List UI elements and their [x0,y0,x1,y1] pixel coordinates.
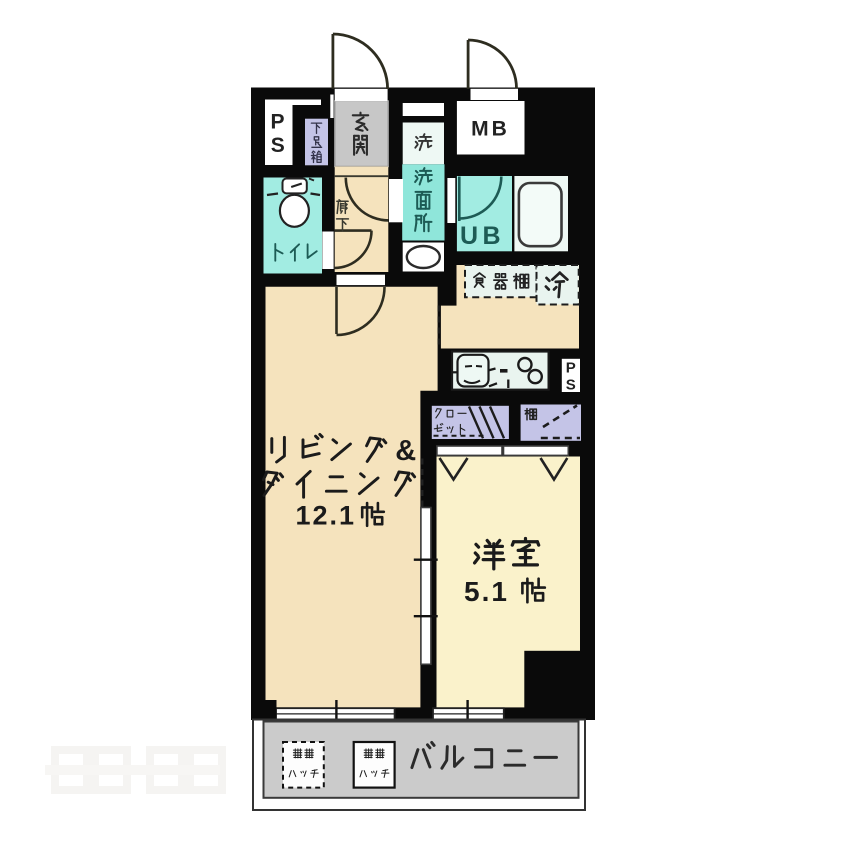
svg-text:B: B [482,222,500,250]
svg-text:MB: MB [471,118,510,141]
svg-text:S: S [566,377,576,394]
svg-text:P: P [270,111,284,134]
svg-text:U: U [460,222,478,250]
svg-text:P: P [566,360,576,377]
svg-text:12.1: 12.1 [296,501,357,531]
svg-text:S: S [271,134,285,157]
svg-text:5.1: 5.1 [464,576,509,607]
svg-text:&: & [395,435,416,467]
